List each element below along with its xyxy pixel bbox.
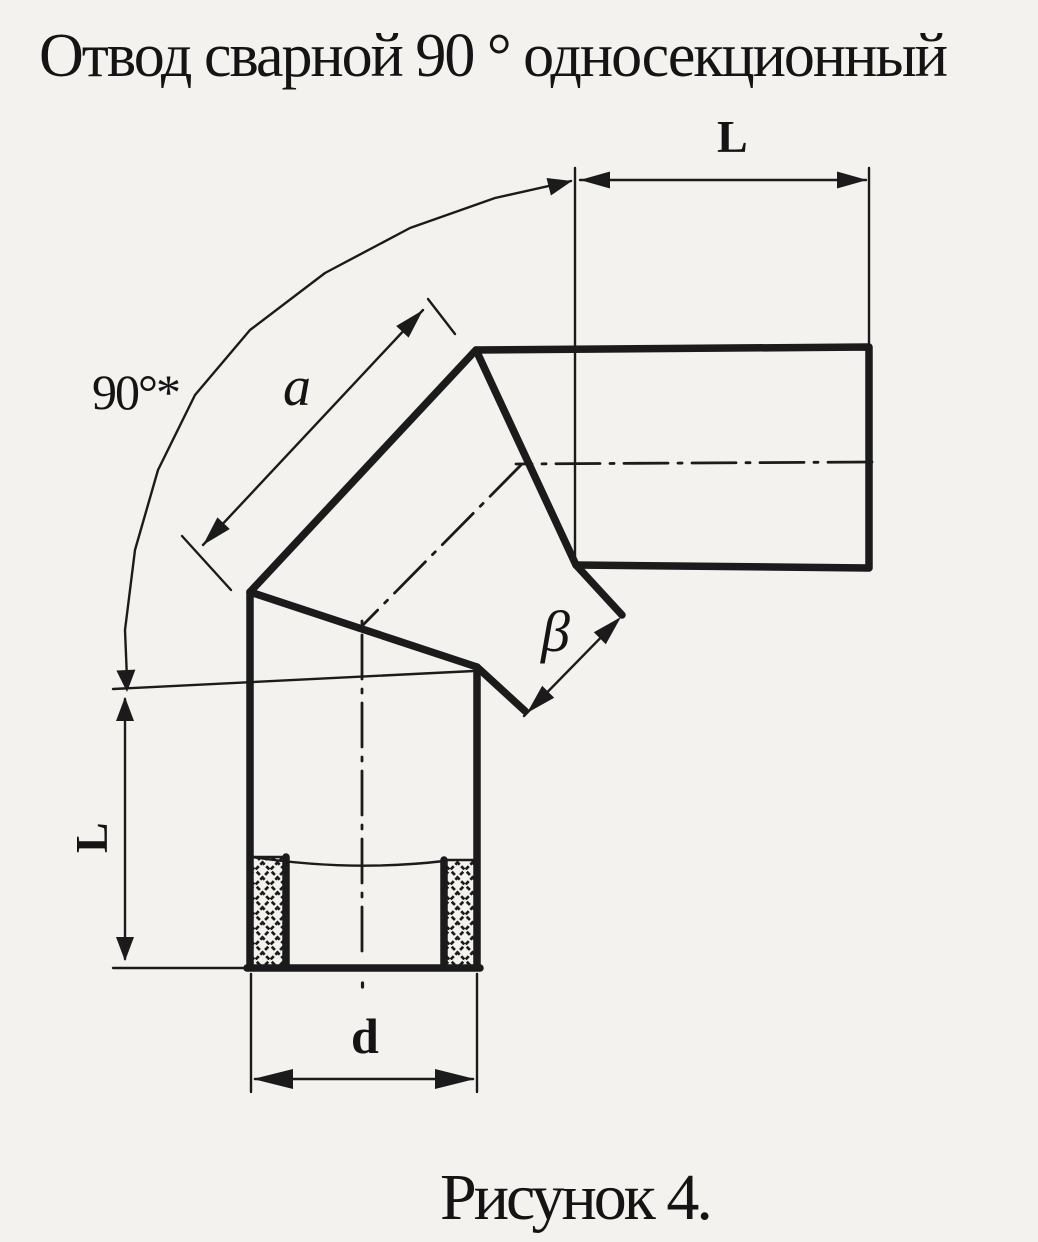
svg-text:90°*: 90°*: [92, 364, 179, 420]
svg-text:Отвод сварной 90 ° односекцион: Отвод сварной 90 ° односекционный: [39, 22, 947, 90]
svg-text:a: a: [283, 356, 311, 418]
svg-text:d: d: [351, 1008, 379, 1064]
svg-text:L: L: [66, 822, 117, 853]
svg-text:L: L: [717, 111, 748, 162]
svg-text:Рисунок 4.: Рисунок 4.: [440, 1161, 710, 1234]
svg-text:β: β: [540, 599, 570, 664]
